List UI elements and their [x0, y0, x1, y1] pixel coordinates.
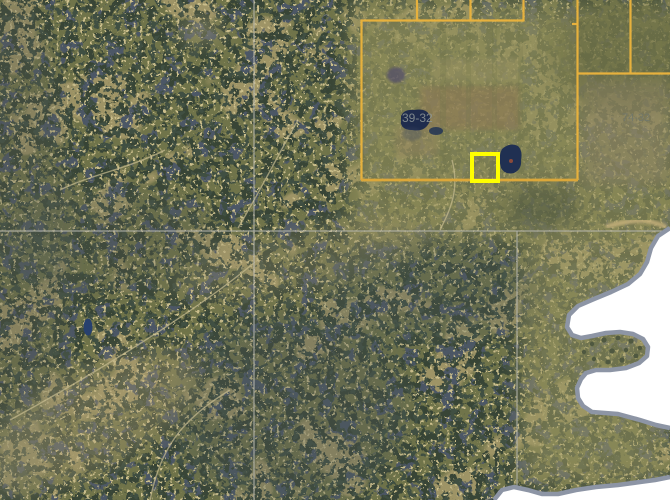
svg-text:74-32: 74-32 — [622, 112, 650, 124]
svg-text:39-32: 39-32 — [402, 111, 433, 125]
